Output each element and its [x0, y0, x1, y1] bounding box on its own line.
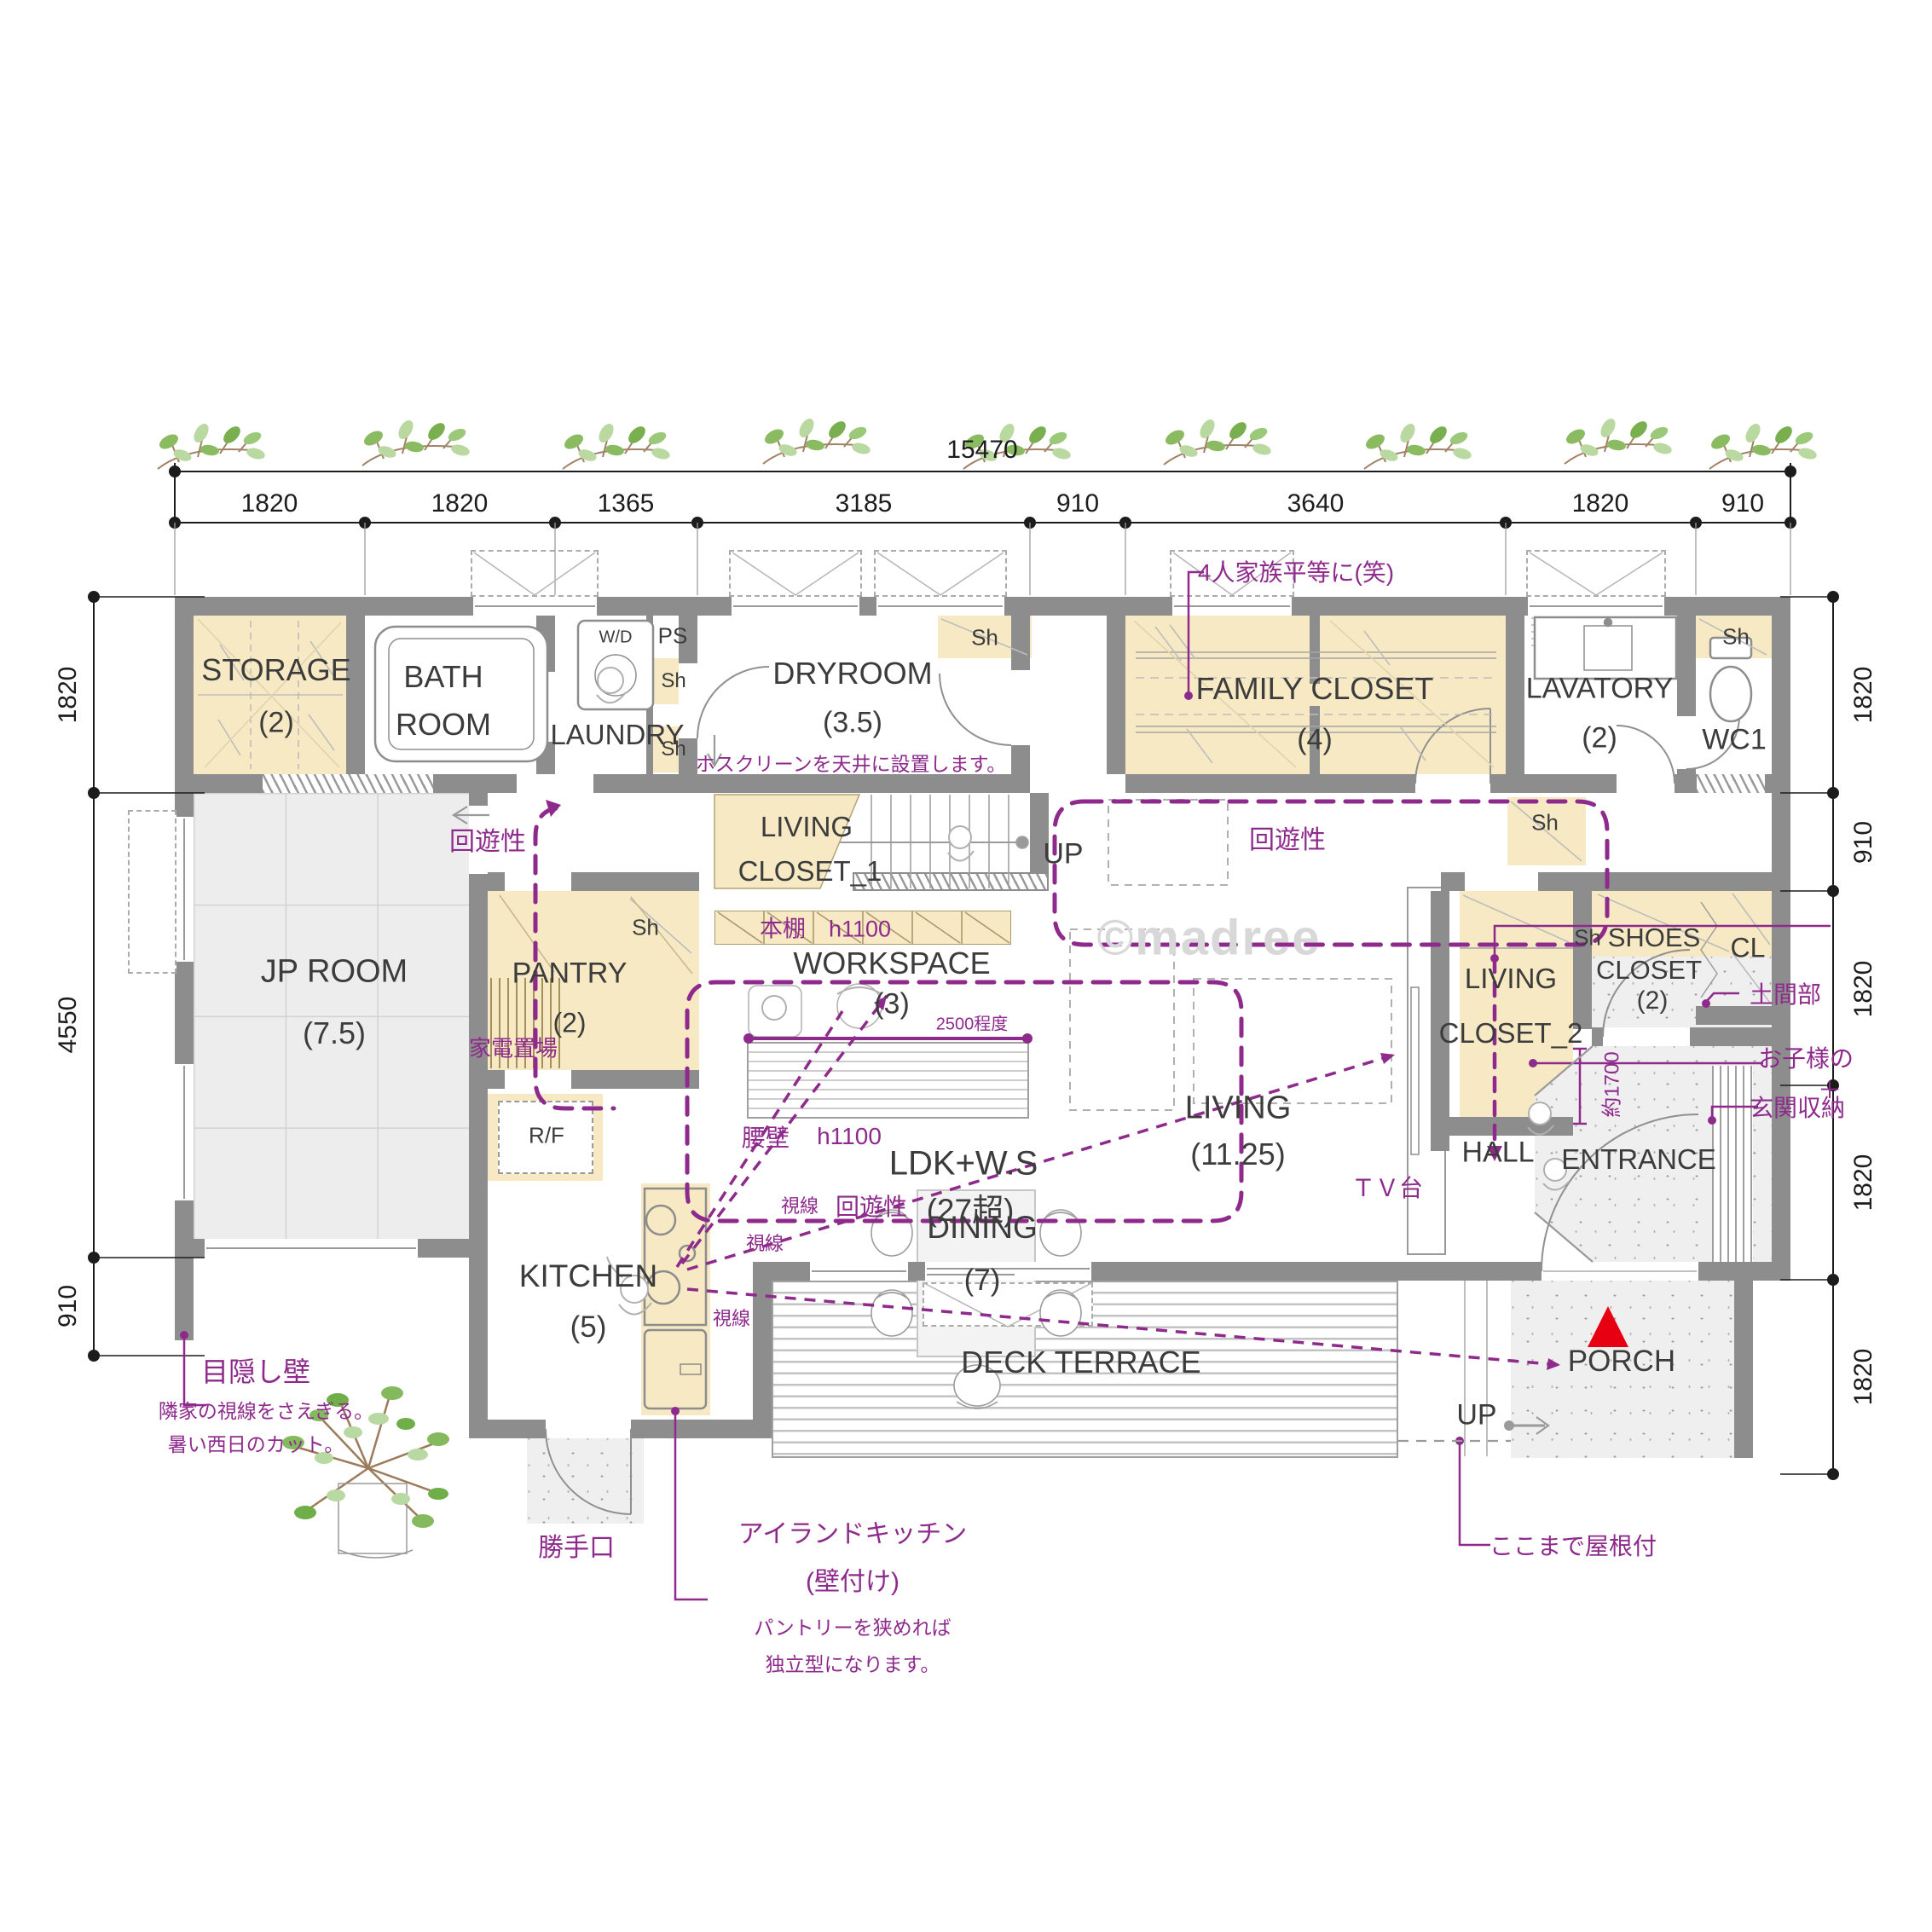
- note-bookshelf: 本棚 h1100: [760, 911, 891, 944]
- shoes-closet-size: (2): [1637, 986, 1669, 1015]
- closet1-label-1: LIVING: [761, 811, 853, 843]
- note-tv: ＴＶ台: [1351, 1170, 1423, 1204]
- note-mekakushi: 目隠し壁: [201, 1351, 310, 1390]
- note-katteguchi: 勝手口: [538, 1526, 615, 1564]
- room-lavatory-size: (2): [1582, 722, 1617, 755]
- room-living-label: LIVING: [1185, 1090, 1292, 1127]
- wall-left: [175, 597, 194, 1340]
- note-shisen: 視線: [713, 1304, 750, 1331]
- room-family-closet-label: FAMILY CLOSET: [1196, 671, 1434, 707]
- room-storage-fill: [194, 616, 346, 774]
- note-kaiyu: 回遊性: [1249, 818, 1326, 856]
- room-kitchen-label: KITCHEN: [519, 1258, 657, 1294]
- ps-label: PS: [658, 623, 688, 650]
- genkan-shelf: [1712, 1066, 1753, 1262]
- room-workspace-label: WORKSPACE: [793, 946, 990, 981]
- wall-right: [1772, 597, 1790, 1281]
- note-roof: ここまで屋根付: [1489, 1528, 1657, 1562]
- note-h1100: h1100: [817, 1123, 882, 1150]
- floor-plan: 15470 1820 1820 1365 3185 910 3640 1820 …: [0, 0, 1932, 1932]
- note-kaden: 家電置場: [469, 1032, 558, 1063]
- closet1-label-2: CLOSET_1: [738, 855, 882, 888]
- dim-right-3: 1820: [1849, 1154, 1878, 1212]
- dim-right-1: 910: [1849, 821, 1878, 864]
- watermark: ©madree: [1096, 910, 1321, 967]
- ldk-label: LDK+W.S: [889, 1145, 1038, 1183]
- window-symbol: [1526, 550, 1666, 597]
- note-island-1: アイランドキッチン: [738, 1513, 968, 1550]
- room-workspace-size: (3): [874, 988, 910, 1021]
- dim-right-0: 1820: [1849, 667, 1878, 724]
- dim-top-1: 1820: [431, 489, 489, 518]
- dim-left-1: 4550: [54, 997, 83, 1054]
- room-entrance-label: ENTRANCE: [1561, 1143, 1716, 1176]
- sh-label: Sh: [1531, 810, 1559, 836]
- dim-total: 15470: [946, 436, 1017, 465]
- note-kids: お子様の: [1758, 1040, 1854, 1074]
- dim-left-2: 910: [54, 1285, 83, 1328]
- dim-left-0: 1820: [54, 667, 83, 724]
- room-dryroom-size: (3.5): [823, 707, 882, 740]
- note-mekakushi-1: 隣家の視線をさえぎる。: [159, 1395, 373, 1424]
- window-symbol: [471, 550, 599, 597]
- dim-top-3: 3185: [836, 489, 893, 518]
- closet2-label-2: CLOSET_2: [1439, 1017, 1583, 1050]
- closet-cl-label: CL: [1731, 933, 1766, 964]
- note-yaku1700: 約1700: [1595, 1051, 1625, 1117]
- note-2500: 2500程度: [936, 1010, 1009, 1035]
- note-genkan: 玄関収納: [1750, 1090, 1845, 1124]
- dim-top-5: 3640: [1287, 489, 1345, 518]
- sh-label: Sh: [661, 669, 685, 693]
- note-doma: 土間部: [1750, 976, 1821, 1010]
- dim-top-2: 1365: [598, 489, 655, 518]
- shoes-closet-label-1: SHOES: [1608, 923, 1701, 953]
- sh-label: Sh: [1574, 925, 1601, 952]
- dim-right-2: 1820: [1849, 961, 1878, 1018]
- room-jp-size: (7.5): [303, 1015, 366, 1051]
- note-dryroom: ホスクリーンを天井に設置します。: [696, 748, 1007, 777]
- sh-label: Sh: [1722, 624, 1750, 651]
- room-bath-label-1: BATH: [403, 659, 483, 695]
- window-symbol: [729, 550, 862, 597]
- room-wc-label: WC1: [1702, 724, 1767, 757]
- room-storage-size: (2): [258, 707, 294, 740]
- dim-top-7: 910: [1721, 489, 1764, 518]
- room-dryroom-label: DRYROOM: [772, 656, 932, 691]
- dim-top-6: 1820: [1572, 489, 1629, 518]
- note-shisen: 視線: [781, 1191, 818, 1218]
- dim-top-0: 1820: [241, 489, 298, 518]
- note-koshikabe: 腰壁: [742, 1119, 790, 1154]
- kitchen-island-fill: [641, 1183, 710, 1415]
- room-jp-label: JP ROOM: [261, 954, 408, 991]
- note-mekakushi-2: 暑い西日のカット。: [168, 1428, 344, 1457]
- sh-label: Sh: [632, 915, 659, 941]
- room-kitchen-size: (5): [570, 1310, 607, 1345]
- up-label-porch: UP: [1456, 1399, 1496, 1432]
- room-family-closet-size: (4): [1297, 724, 1333, 757]
- room-dining-size: (7): [964, 1264, 1001, 1298]
- shoes-closet-label-2: CLOSET: [1596, 955, 1702, 986]
- note-kaiyu: 回遊性: [836, 1189, 907, 1223]
- workspace-desk: [747, 1042, 1029, 1119]
- note-kaiyu: 回遊性: [449, 820, 526, 858]
- note-island-4: 独立型になります。: [766, 1648, 940, 1677]
- window-symbol: [128, 810, 176, 974]
- room-bath-label-2: ROOM: [396, 707, 491, 743]
- sh-label: Sh: [971, 625, 998, 651]
- engawa-step: [923, 1282, 1093, 1327]
- porch-label: PORCH: [1568, 1345, 1675, 1379]
- room-storage-label: STORAGE: [201, 652, 350, 688]
- rf-label: R/F: [529, 1123, 564, 1149]
- katteguchi-pad: [527, 1438, 644, 1524]
- ldk-size: (27超): [927, 1184, 1015, 1230]
- note-family: 4人家族平等に(笑): [1198, 554, 1394, 588]
- wd-label: W/D: [599, 628, 633, 648]
- up-label-stairs: UP: [1043, 838, 1083, 871]
- room-pantry-size: (2): [552, 1008, 586, 1039]
- room-living-size: (11.25): [1190, 1137, 1285, 1172]
- closet2-label-1: LIVING: [1465, 963, 1557, 995]
- room-lavatory-label: LAVATORY: [1526, 673, 1674, 706]
- room-hall-label: HALL: [1461, 1137, 1534, 1170]
- sh-label: Sh: [661, 738, 685, 761]
- note-shisen: 視線: [746, 1229, 784, 1256]
- note-island-2: (壁付け): [806, 1560, 899, 1598]
- dim-right-4: 1820: [1849, 1349, 1878, 1406]
- deck-terrace-label: DECK TERRACE: [961, 1345, 1200, 1380]
- dim-top-4: 910: [1056, 489, 1099, 518]
- note-island-3: パントリーを狭めれば: [754, 1611, 951, 1640]
- room-pantry-label: PANTRY: [512, 957, 628, 991]
- window-symbol: [874, 550, 1007, 597]
